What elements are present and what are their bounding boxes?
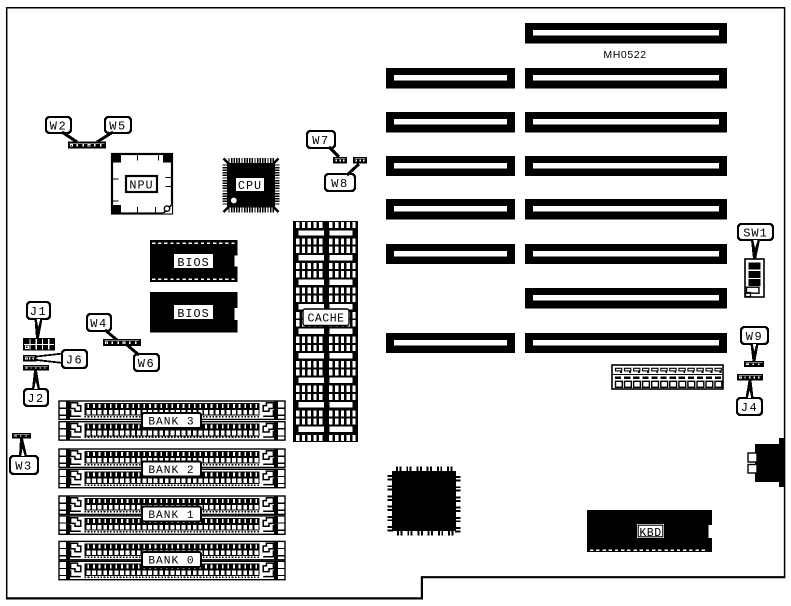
svg-text:NPU: NPU — [129, 179, 153, 193]
svg-text:W2: W2 — [50, 119, 67, 133]
svg-text:W3: W3 — [15, 459, 32, 473]
svg-text:J1: J1 — [30, 305, 47, 319]
svg-text:BIOS: BIOS — [177, 307, 209, 321]
svg-text:W7: W7 — [312, 134, 329, 148]
svg-text:KBD: KBD — [639, 527, 661, 540]
svg-text:W6: W6 — [138, 357, 155, 371]
svg-text:BIOS: BIOS — [177, 256, 209, 270]
svg-text:W4: W4 — [90, 317, 107, 331]
svg-text:J4: J4 — [741, 401, 758, 415]
svg-text:CACHE: CACHE — [307, 313, 344, 326]
svg-text:BANK 0: BANK 0 — [148, 556, 194, 568]
svg-text:CPU: CPU — [238, 179, 262, 193]
svg-text:MH0522: MH0522 — [603, 49, 646, 61]
svg-text:W8: W8 — [331, 177, 348, 191]
svg-text:J2: J2 — [27, 392, 44, 406]
svg-text:BANK 2: BANK 2 — [148, 465, 194, 477]
svg-text:J6: J6 — [66, 353, 83, 367]
svg-text:BANK 1: BANK 1 — [148, 510, 194, 522]
svg-text:BANK 3: BANK 3 — [148, 417, 194, 429]
svg-text:W9: W9 — [746, 330, 763, 344]
svg-text:SW1: SW1 — [743, 226, 768, 240]
